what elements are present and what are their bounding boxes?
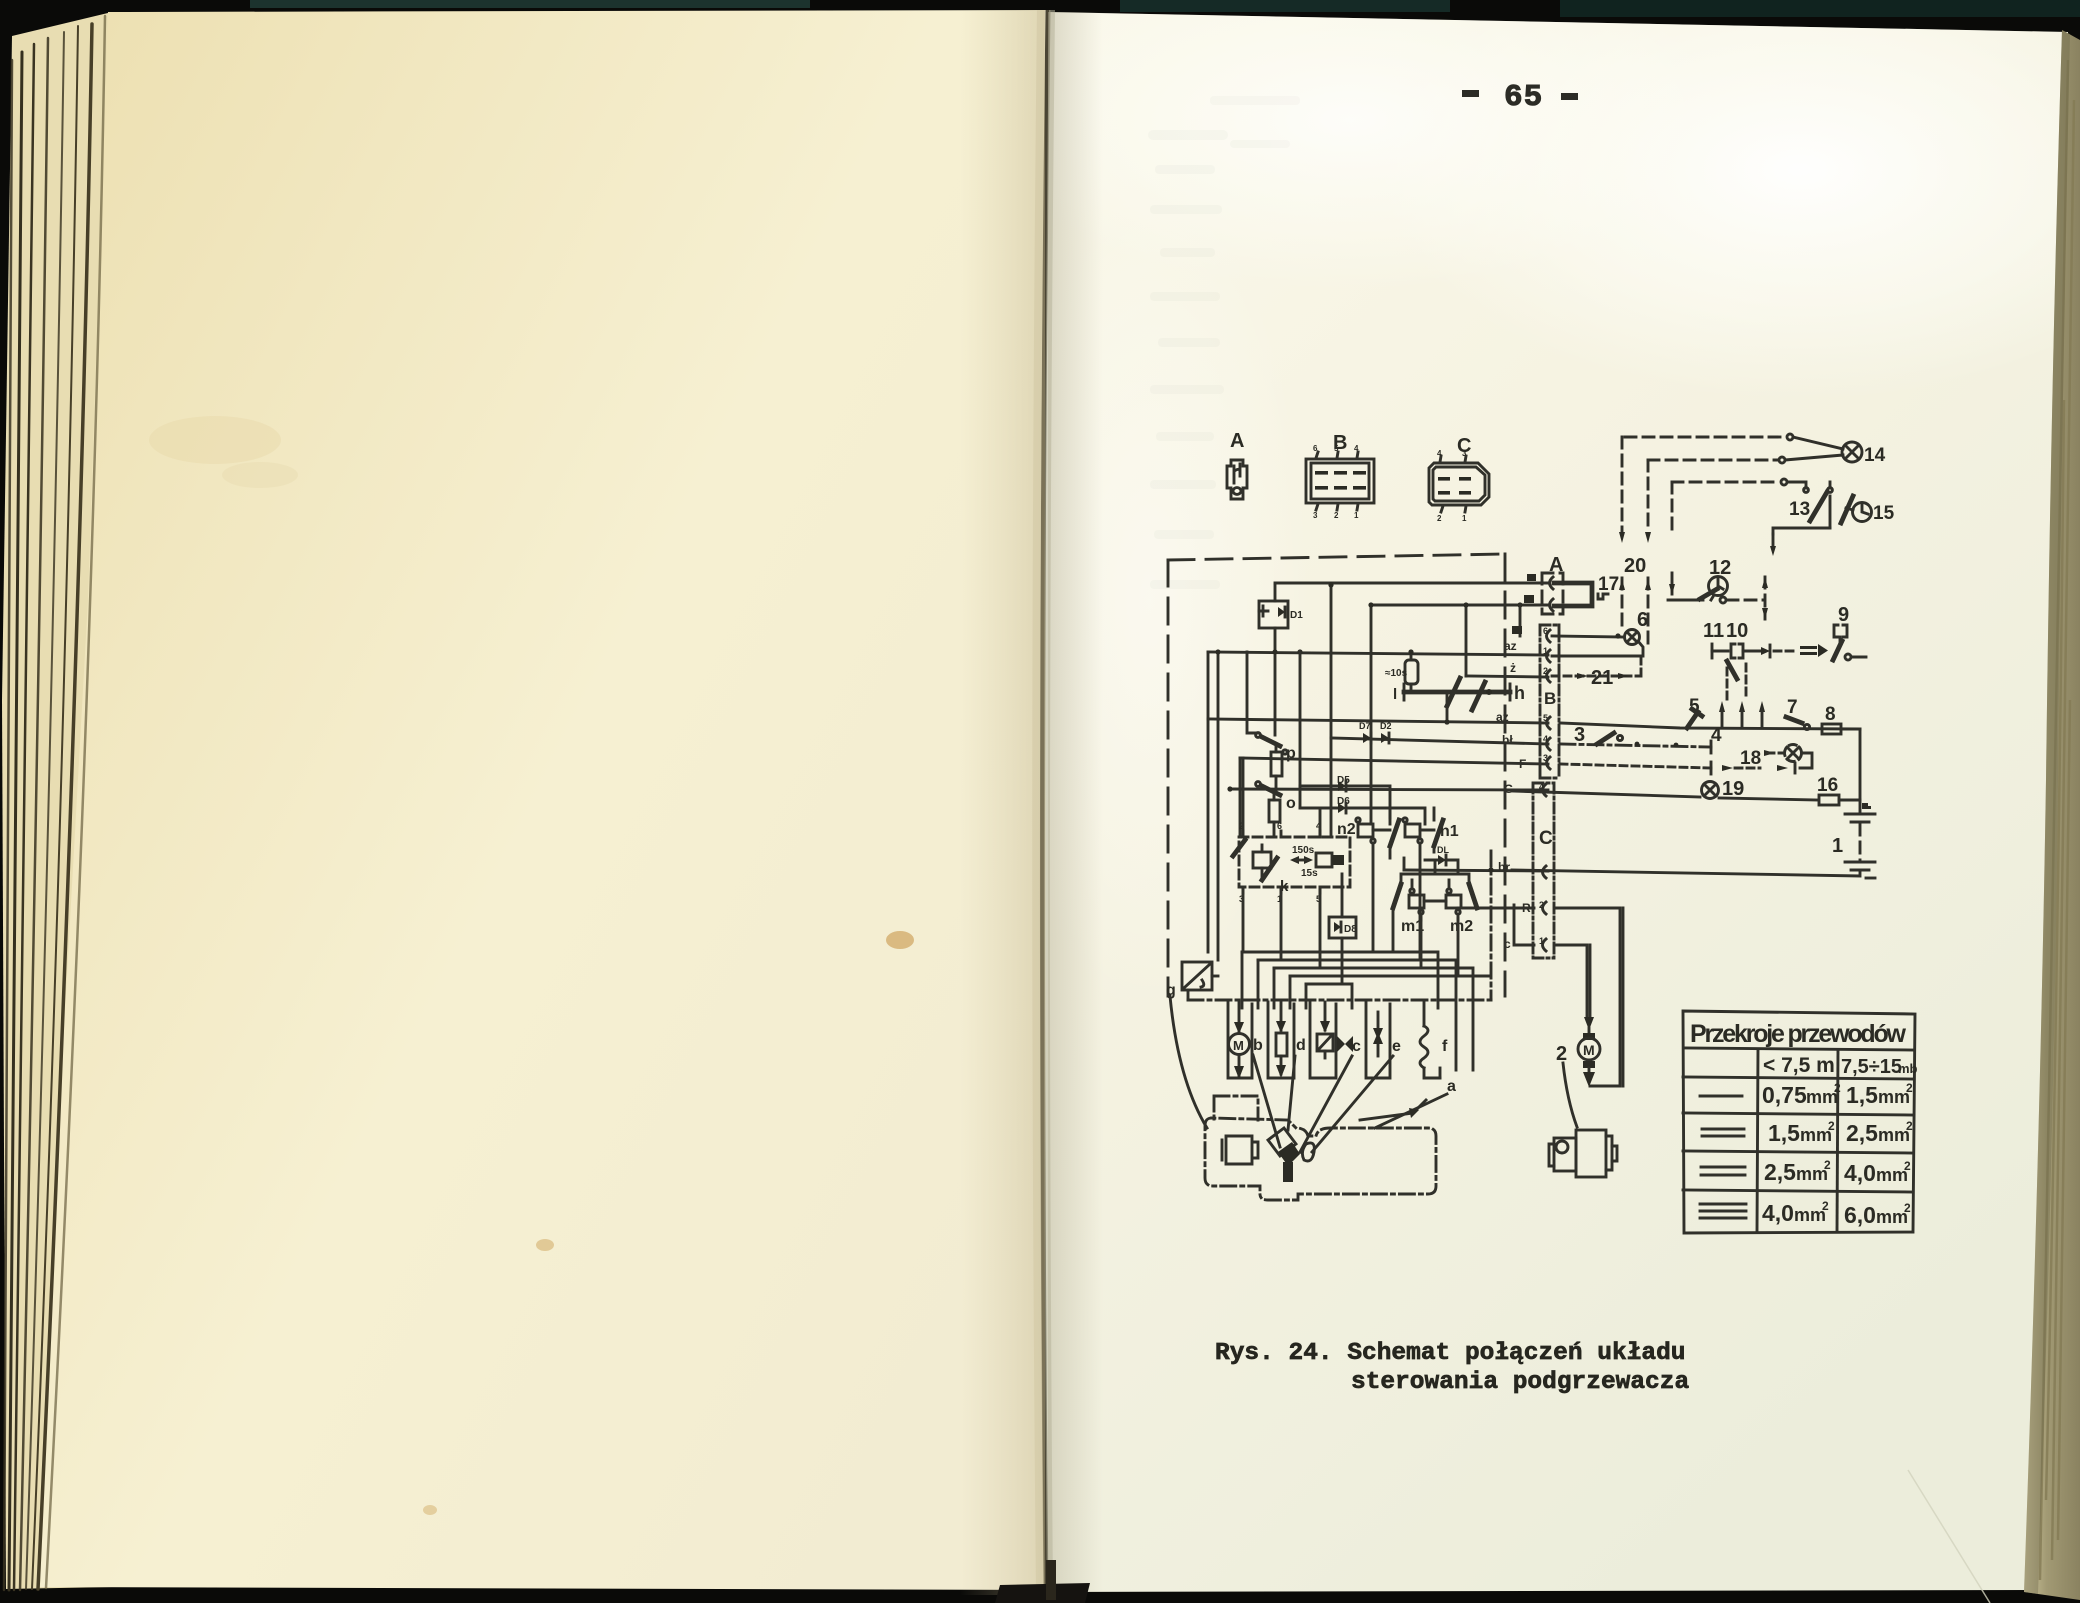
svg-text:c: c [1352,1038,1361,1055]
svg-text:15s: 15s [1301,868,1318,879]
svg-text:sterowania podgrzewacza: sterowania podgrzewacza [1351,1369,1689,1396]
svg-text:D2: D2 [1380,721,1392,731]
svg-text:2: 2 [1543,666,1548,676]
svg-text:0,75: 0,75 [1762,1082,1807,1108]
svg-text:o: o [1286,795,1296,812]
svg-text:3: 3 [1462,449,1467,458]
svg-text:3: 3 [1313,511,1318,520]
svg-text:1,5: 1,5 [1768,1120,1800,1146]
svg-text:m2: m2 [1450,918,1473,935]
svg-text:3: 3 [1574,724,1585,746]
svg-text:21: 21 [1591,667,1613,689]
svg-text:n1: n1 [1440,823,1459,840]
svg-text:10: 10 [1726,620,1748,642]
svg-text:11: 11 [1703,620,1724,642]
svg-text:5: 5 [1334,444,1339,453]
svg-text:2,5: 2,5 [1846,1120,1878,1146]
svg-text:4: 4 [1354,444,1359,453]
svg-text:7,5÷15: 7,5÷15 [1841,1056,1902,1078]
svg-text:2: 2 [1822,1199,1829,1213]
svg-text:4,0: 4,0 [1762,1200,1794,1226]
svg-text:4,0: 4,0 [1844,1160,1876,1186]
svg-text:Przekroje przewodów: Przekroje przewodów [1690,1020,1907,1048]
svg-text:6: 6 [1313,444,1318,453]
svg-text:D8: D8 [1344,924,1357,935]
svg-text:2: 2 [1828,1119,1835,1133]
svg-text:13: 13 [1789,499,1810,520]
svg-text:2: 2 [1904,1201,1911,1215]
svg-text:6: 6 [1637,609,1648,631]
svg-text:D1: D1 [1290,610,1303,621]
svg-text:< 7,5 m: < 7,5 m [1763,1054,1835,1077]
svg-text:7: 7 [1787,697,1798,718]
svg-text:6,0: 6,0 [1844,1202,1876,1228]
svg-text:2,5: 2,5 [1764,1159,1796,1185]
svg-text:≈10s: ≈10s [1385,668,1408,679]
svg-text:M: M [1583,1042,1595,1058]
svg-text:14: 14 [1864,445,1886,466]
svg-text:d: d [1296,1037,1306,1054]
svg-text:1: 1 [1462,514,1467,523]
svg-text:l: l [1393,686,1397,703]
svg-text:17: 17 [1598,574,1619,595]
svg-text:15: 15 [1873,503,1895,524]
svg-text:2: 2 [1334,511,1339,520]
svg-text:n2: n2 [1337,821,1356,838]
svg-text:mb: mb [1898,1061,1918,1076]
svg-text:1: 1 [1354,511,1359,520]
svg-text:3: 3 [1543,753,1548,763]
svg-text:2: 2 [1824,1158,1831,1172]
svg-text:1: 1 [1539,936,1544,946]
svg-text:D7: D7 [1359,721,1371,731]
svg-text:1,5: 1,5 [1846,1082,1878,1108]
svg-text:f: f [1442,1038,1448,1055]
svg-text:4: 4 [1711,725,1722,746]
svg-text:B: B [1544,689,1556,708]
svg-text:2: 2 [1906,1119,1913,1133]
svg-text:20: 20 [1624,555,1646,577]
svg-text:6: 6 [1543,626,1548,636]
svg-text:a: a [1447,1078,1456,1095]
svg-text:2: 2 [1437,514,1442,523]
svg-text:8: 8 [1825,704,1836,725]
svg-text:18: 18 [1740,748,1761,769]
svg-text:Rys. 24. Schemat połączeń ukł: Rys. 24. Schemat połączeń układu [1215,1340,1685,1367]
svg-text:2: 2 [1834,1081,1841,1095]
svg-text:2: 2 [1904,1159,1911,1173]
svg-text:65: 65 [1504,80,1543,115]
svg-text:C: C [1539,828,1553,849]
svg-text:DL: DL [1437,845,1449,855]
svg-text:2: 2 [1539,900,1544,910]
svg-text:A: A [1230,430,1244,452]
svg-text:1: 1 [1832,835,1843,857]
svg-text:b: b [1253,1037,1263,1054]
svg-text:150s: 150s [1292,845,1315,856]
svg-text:h: h [1514,683,1525,703]
svg-text:4: 4 [1437,449,1442,458]
svg-text:9: 9 [1838,604,1849,626]
svg-text:M: M [1233,1038,1244,1053]
svg-text:ż: ż [1510,661,1516,675]
svg-text:6: 6 [1277,821,1282,831]
svg-text:2: 2 [1906,1081,1913,1095]
svg-text:e: e [1392,1038,1401,1055]
svg-text:16: 16 [1817,775,1838,796]
